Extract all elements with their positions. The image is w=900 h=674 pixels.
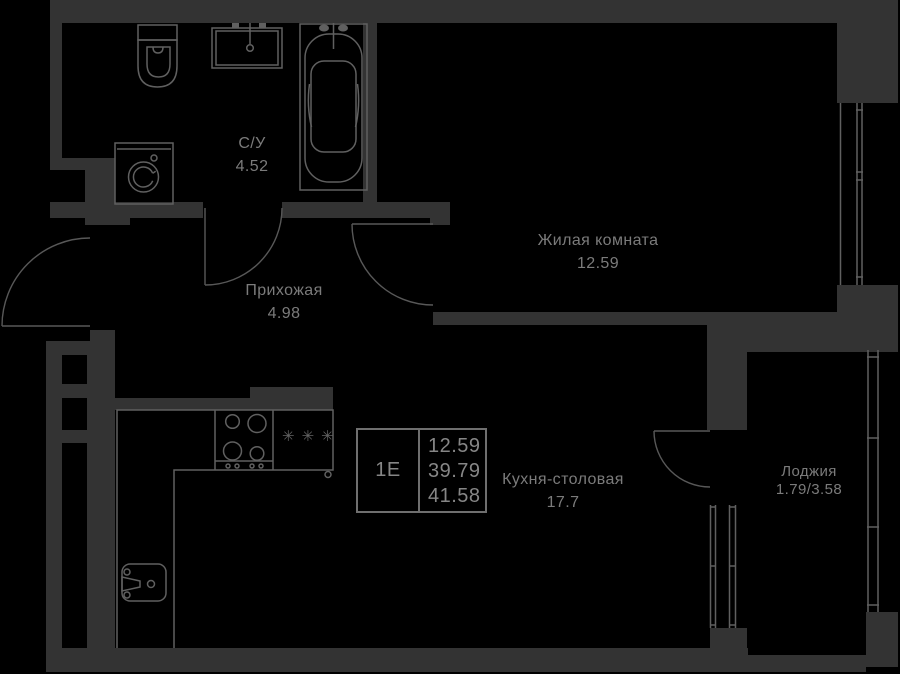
wall-mid-right-pier xyxy=(837,285,898,352)
washer-body xyxy=(115,143,173,204)
window-balcony-block xyxy=(710,505,736,628)
bathtub-fixture xyxy=(300,23,367,190)
toilet-cistern xyxy=(138,25,177,40)
unit-areas: 12.59 39.79 41.58 xyxy=(420,430,485,511)
unit-type: 1Е xyxy=(358,430,420,511)
wall-left-top xyxy=(50,23,62,158)
bathtub-basin xyxy=(311,61,356,152)
room-name: Лоджия xyxy=(776,463,842,481)
room-area: 4.98 xyxy=(245,302,322,325)
burner xyxy=(248,415,266,433)
floor-plan-drawing xyxy=(0,0,900,674)
wall-hall-kitchen-thick xyxy=(250,387,333,410)
wall-loggia-bottom xyxy=(748,655,866,672)
room-area: 12.59 xyxy=(538,252,659,275)
balcony-door-arc xyxy=(654,431,710,487)
wall-loggia-top xyxy=(747,312,837,352)
room-name: Прихожая xyxy=(245,279,322,302)
window-loggia xyxy=(867,350,879,612)
wall-entrance-stub xyxy=(115,215,130,225)
room-name: Кухня-столовая xyxy=(502,468,624,491)
room-label-hallway: Прихожая 4.98 xyxy=(245,279,322,325)
stove-knob xyxy=(259,464,263,468)
kitchen-door-arc xyxy=(352,224,433,305)
unit-info-box: 1Е 12.59 39.79 41.58 xyxy=(356,428,487,513)
unit-area-value: 41.58 xyxy=(428,484,485,509)
washer-drum-tick xyxy=(153,171,156,173)
burner xyxy=(224,442,242,460)
stove-knob xyxy=(250,464,254,468)
room-label-loggia: Лоджия 1.79/3.58 xyxy=(776,463,842,499)
unit-area-value: 12.59 xyxy=(428,434,485,459)
room-label-living-room: Жилая комната 12.59 xyxy=(538,229,659,275)
burner xyxy=(226,415,240,429)
kitchen-sink-spout xyxy=(122,577,140,591)
wall-left-bar xyxy=(50,158,115,170)
wall-left-inner xyxy=(87,355,115,648)
fridge-hinge-dot xyxy=(325,472,331,478)
window-living-room xyxy=(841,103,864,285)
wall-top xyxy=(50,0,838,23)
wall-bottom xyxy=(47,648,748,672)
bathtub-rim xyxy=(305,34,362,182)
floor-plan: С/У 4.52 Жилая комната 12.59 Прихожая 4.… xyxy=(0,0,900,674)
bathtub-handle-left xyxy=(319,25,329,32)
washing-machine-fixture xyxy=(115,143,173,204)
wall-bottom-right-pier xyxy=(866,612,898,667)
room-area: 4.52 xyxy=(236,155,269,178)
bathroom-door-arc xyxy=(205,208,282,285)
kitchen-door xyxy=(352,224,433,305)
entrance-door xyxy=(2,238,90,326)
wall-bathroom-bottom-right xyxy=(282,202,450,218)
room-area: 1.79/3.58 xyxy=(776,481,842,499)
wall-hall-kitchen-thin xyxy=(115,398,252,410)
kitchen-sink-tap xyxy=(124,592,130,598)
washer-drum-inner xyxy=(133,167,152,187)
wall-shaft-bar-1 xyxy=(46,384,115,398)
stove-knob xyxy=(226,464,230,468)
sink-handle-left xyxy=(232,23,239,28)
room-name: Жилая комната xyxy=(538,229,659,252)
stove-knob xyxy=(235,464,239,468)
fixtures xyxy=(115,23,367,648)
bathtub-handle-right xyxy=(338,25,348,32)
wall-left-bar-2 xyxy=(46,341,115,355)
bathroom-door xyxy=(205,208,282,285)
kitchen-sink-tap xyxy=(124,569,130,575)
room-name: С/У xyxy=(236,132,269,155)
wall-left-outer xyxy=(46,355,62,672)
toilet-bowl-inner xyxy=(147,47,170,77)
toilet-notch xyxy=(153,47,163,53)
kitchen-sink-drain xyxy=(148,581,155,588)
fridge-icon: ✳✳✳ xyxy=(275,428,333,446)
wall-kitchen-loggia xyxy=(707,325,747,430)
washer-dial xyxy=(151,155,157,161)
kitchen-sink-fixture xyxy=(122,564,166,601)
wall-entrance-top xyxy=(85,170,115,225)
toilet-fixture xyxy=(138,25,177,87)
bathroom-sink-fixture xyxy=(212,23,282,68)
sink-handle-right xyxy=(259,23,266,28)
sink-drain xyxy=(247,45,254,52)
balcony-door xyxy=(654,431,710,487)
wall-top-right-pier xyxy=(837,0,898,103)
room-area: 17.7 xyxy=(502,491,624,514)
unit-area-value: 39.79 xyxy=(428,459,485,484)
room-label-bathroom: С/У 4.52 xyxy=(236,132,269,178)
room-label-kitchen: Кухня-столовая 17.7 xyxy=(502,468,624,514)
burner xyxy=(250,447,264,461)
wall-bathroom-living-divider xyxy=(363,23,377,216)
stove-fixture xyxy=(224,415,332,478)
entrance-door-arc xyxy=(2,238,90,326)
wall-shaft-bar-2 xyxy=(46,430,115,443)
